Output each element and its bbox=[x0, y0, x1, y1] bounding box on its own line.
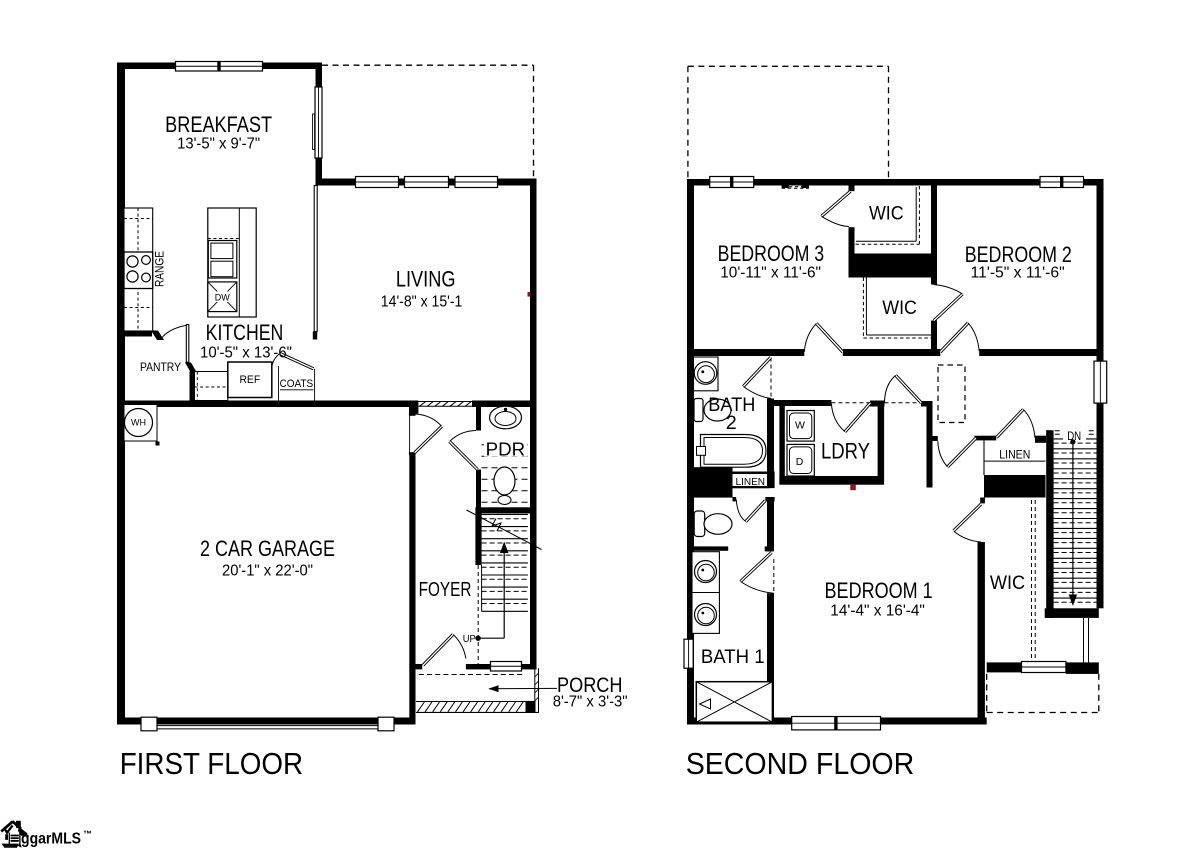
svg-text:REF: REF bbox=[239, 374, 260, 386]
svg-text:LIVING: LIVING bbox=[396, 267, 456, 292]
svg-text:DW: DW bbox=[215, 292, 230, 303]
svg-text:D: D bbox=[796, 456, 804, 468]
svg-text:BEDROOM 1: BEDROOM 1 bbox=[825, 578, 933, 603]
svg-text:BEDROOM 3: BEDROOM 3 bbox=[718, 241, 825, 266]
svg-text:WIC: WIC bbox=[882, 297, 917, 319]
svg-text:LDRY: LDRY bbox=[821, 438, 870, 463]
svg-text:14'-8" x 15'-1: 14'-8" x 15'-1 bbox=[381, 294, 463, 311]
svg-text:BATH 1: BATH 1 bbox=[701, 646, 765, 668]
svg-text:KITCHEN: KITCHEN bbox=[206, 320, 284, 345]
svg-text:8'-7" x 3'-3": 8'-7" x 3'-3" bbox=[553, 693, 628, 710]
svg-text:WIC: WIC bbox=[869, 203, 904, 225]
svg-text:W: W bbox=[795, 420, 805, 432]
svg-text:COATS: COATS bbox=[280, 378, 314, 390]
svg-text:LINEN: LINEN bbox=[999, 449, 1030, 461]
svg-text:BEDROOM 2: BEDROOM 2 bbox=[965, 242, 1072, 267]
svg-text:11'-5" x 11'-6": 11'-5" x 11'-6" bbox=[971, 265, 1065, 282]
svg-text:WIC: WIC bbox=[990, 572, 1025, 594]
svg-text:™: ™ bbox=[83, 829, 92, 839]
svg-text:PDR: PDR bbox=[486, 439, 526, 460]
svg-text:FIRST FLOOR: FIRST FLOOR bbox=[120, 748, 303, 781]
svg-text:BREAKFAST: BREAKFAST bbox=[165, 112, 272, 137]
svg-text:2 CAR GARAGE: 2 CAR GARAGE bbox=[200, 536, 335, 561]
svg-text:13'-5" x 9'-7": 13'-5" x 9'-7" bbox=[177, 135, 260, 152]
svg-text:20'-1" x 22'-0": 20'-1" x 22'-0" bbox=[222, 563, 313, 580]
svg-text:10'-5" x 13'-6": 10'-5" x 13'-6" bbox=[200, 344, 292, 361]
svg-text:LINEN: LINEN bbox=[736, 476, 766, 488]
svg-text:FOYER: FOYER bbox=[419, 578, 472, 601]
svg-text:10'-11" x 11'-6": 10'-11" x 11'-6" bbox=[720, 265, 821, 282]
svg-text:SECOND FLOOR: SECOND FLOOR bbox=[686, 748, 915, 781]
svg-text:14'-4" x 16'-4": 14'-4" x 16'-4" bbox=[830, 603, 925, 620]
svg-text:WH: WH bbox=[131, 418, 146, 428]
svg-text:UP: UP bbox=[463, 633, 476, 645]
svg-text:ggarMLS: ggarMLS bbox=[21, 830, 81, 847]
svg-text:RANGE: RANGE bbox=[155, 251, 167, 287]
svg-text:PANTRY: PANTRY bbox=[140, 360, 181, 374]
svg-text:2: 2 bbox=[726, 412, 737, 434]
